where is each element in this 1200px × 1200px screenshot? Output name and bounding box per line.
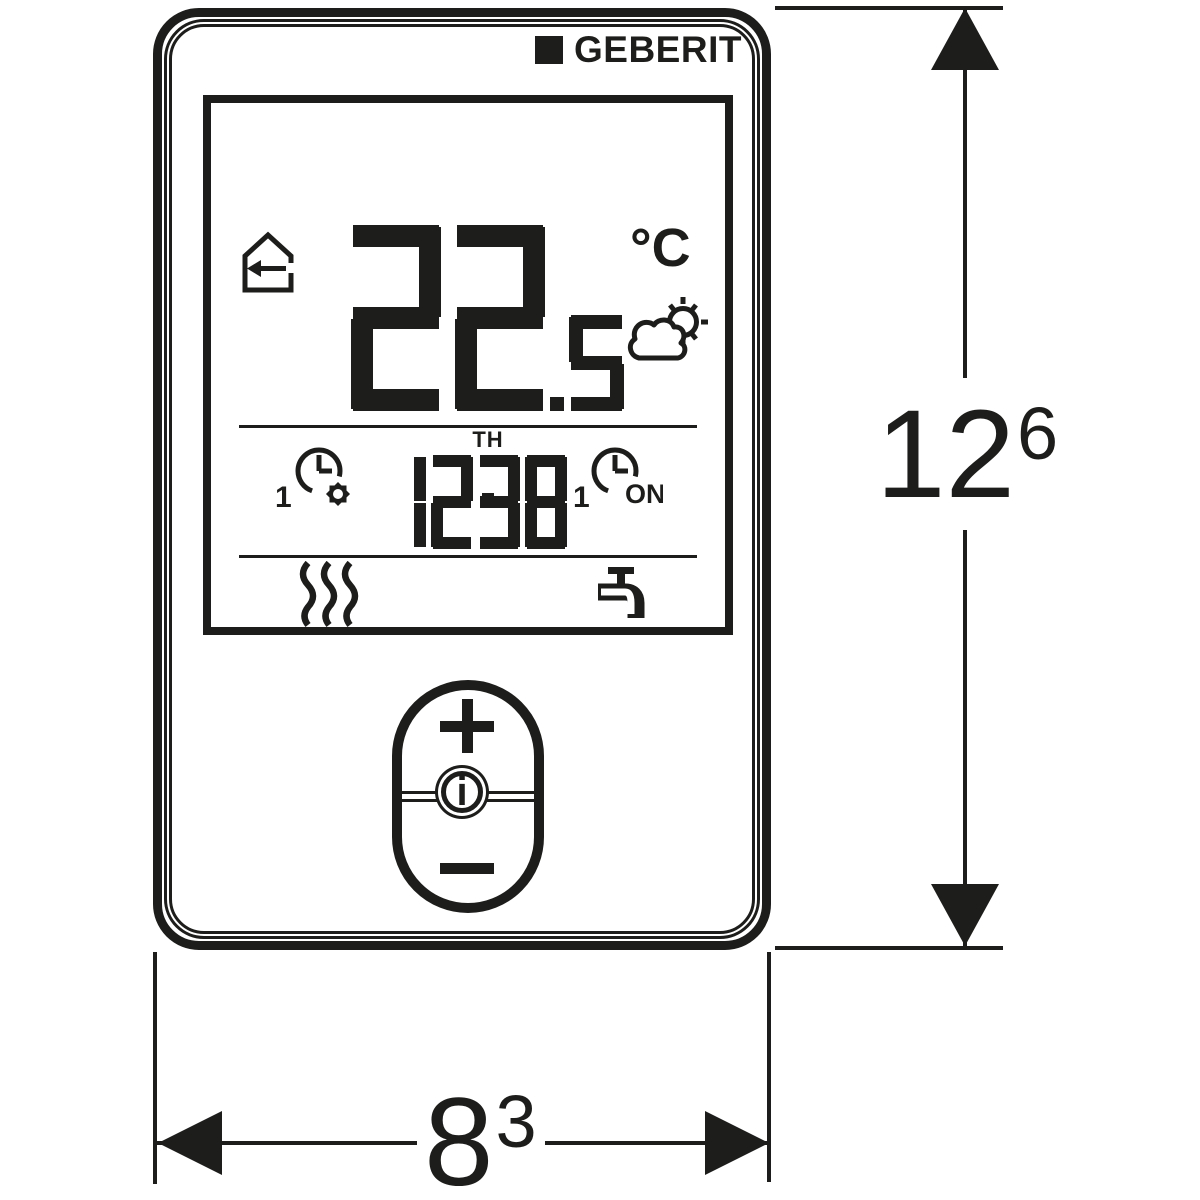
temperature-fraction	[550, 315, 624, 411]
plus-button[interactable]	[440, 699, 494, 753]
display-divider-bottom	[239, 555, 697, 558]
width-arrow-right-icon	[705, 1111, 769, 1175]
width-arrow-left-icon	[158, 1111, 222, 1175]
temperature-reading	[351, 225, 624, 411]
time-display	[385, 455, 591, 549]
on-timer-label: ON	[625, 479, 663, 509]
width-value: 8	[424, 1073, 494, 1200]
on-timer-index: 1	[573, 481, 590, 514]
technical-drawing-canvas: GEBERIT °C	[0, 0, 1200, 1200]
height-extension-line-bottom	[775, 946, 1003, 950]
minus-button[interactable]	[440, 863, 494, 874]
brand-logo-mark-icon	[535, 36, 563, 64]
height-arrow-up-icon	[931, 8, 999, 70]
height-value: 12	[876, 385, 1015, 524]
control-keypad: i	[392, 680, 544, 913]
day-of-week-label: TH	[385, 429, 591, 451]
height-dimension-label: 126	[876, 392, 1058, 517]
width-dimension-label: 83	[424, 1080, 537, 1200]
height-superscript: 6	[1017, 392, 1058, 475]
height-arrow-down-icon	[931, 884, 999, 946]
display-divider-top	[239, 425, 697, 428]
width-extension-line-left	[153, 952, 157, 1184]
height-extension-line-top	[775, 6, 1003, 10]
sun-behind-cloud-icon	[626, 295, 710, 371]
heating-waves-icon	[295, 561, 361, 627]
clock-timer-on-icon: 1 ON	[571, 439, 663, 519]
temperature-integer	[351, 225, 545, 411]
info-button-label: i	[456, 772, 467, 812]
clock-comfort-gear-icon: 1	[271, 439, 363, 519]
plus-icon	[462, 699, 473, 753]
width-extension-line-right	[767, 952, 771, 1182]
thermostat-device: GEBERIT °C	[153, 8, 771, 950]
lcd-display: °C 1	[203, 95, 733, 635]
water-tap-icon	[589, 567, 653, 625]
info-button[interactable]: i	[441, 771, 483, 813]
width-superscript: 3	[496, 1080, 537, 1163]
brand-logo-text: GEBERIT	[574, 31, 742, 68]
temperature-unit: °C	[630, 221, 691, 275]
time-block: TH	[385, 429, 591, 549]
house-arrow-left-icon	[237, 231, 299, 295]
comfort-timer-index: 1	[275, 481, 292, 514]
brand-logo: GEBERIT	[535, 31, 742, 68]
